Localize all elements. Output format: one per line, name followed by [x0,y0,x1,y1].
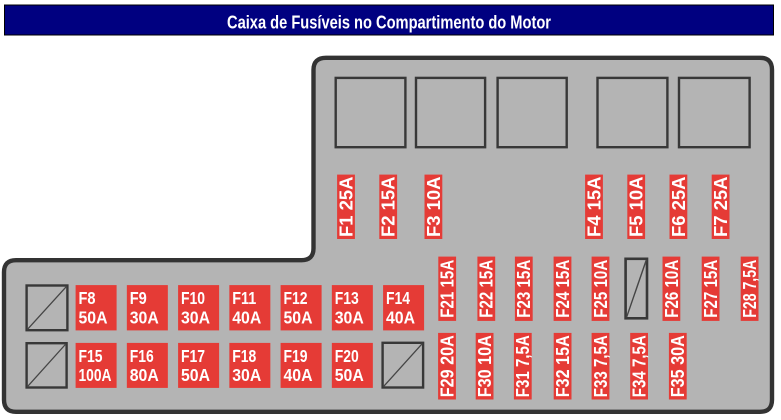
svg-text:F4 15A: F4 15A [583,177,604,238]
svg-text:50A: 50A [181,365,210,385]
svg-text:F11: F11 [232,288,256,308]
svg-text:F18: F18 [232,346,256,366]
svg-text:F30 10A: F30 10A [474,335,495,397]
svg-text:F22 15A: F22 15A [476,260,497,318]
svg-text:F14: F14 [386,288,410,308]
svg-text:50A: 50A [335,365,364,385]
svg-text:F17: F17 [181,346,205,366]
svg-text:F21 15A: F21 15A [437,260,458,318]
svg-text:80A: 80A [130,365,159,385]
svg-text:F6 25A: F6 25A [668,177,689,238]
svg-text:30A: 30A [335,307,364,327]
svg-text:Caixa de Fusíveis no Compartim: Caixa de Fusíveis no Compartimento do Mo… [227,11,551,32]
svg-text:F32 15A: F32 15A [552,335,573,397]
svg-text:F3 10A: F3 10A [423,177,444,238]
svg-text:F20: F20 [335,346,359,366]
svg-text:100A: 100A [79,365,112,385]
svg-text:F8: F8 [79,288,96,308]
svg-text:F24 15A: F24 15A [552,260,573,318]
svg-text:30A: 30A [130,307,159,327]
svg-text:F27 15A: F27 15A [700,260,721,318]
svg-text:F31 7,5A: F31 7,5A [512,335,533,397]
svg-text:F7 25A: F7 25A [710,177,731,238]
svg-text:F16: F16 [130,346,154,366]
svg-text:F15: F15 [79,346,103,366]
svg-text:F26 10A: F26 10A [661,260,682,318]
svg-text:F1 25A: F1 25A [335,177,356,238]
svg-text:50A: 50A [79,307,108,327]
svg-text:F28 7,5A: F28 7,5A [739,260,760,318]
svg-text:F34 7,5A: F34 7,5A [629,335,650,397]
svg-text:F29 20A: F29 20A [436,335,457,397]
svg-text:40A: 40A [232,307,261,327]
svg-text:F25 10A: F25 10A [590,260,611,318]
svg-text:30A: 30A [181,307,210,327]
svg-text:F13: F13 [335,288,359,308]
svg-text:F5 10A: F5 10A [626,177,647,238]
svg-text:F35 30A: F35 30A [667,335,688,397]
svg-text:F12: F12 [284,288,308,308]
svg-text:F23 15A: F23 15A [513,260,534,318]
svg-text:F33 7,5A: F33 7,5A [590,335,611,397]
svg-text:40A: 40A [386,307,415,327]
svg-text:F19: F19 [284,346,308,366]
svg-text:40A: 40A [284,365,313,385]
svg-text:F2 15A: F2 15A [378,177,399,238]
svg-text:50A: 50A [284,307,313,327]
svg-text:F9: F9 [130,288,147,308]
svg-text:30A: 30A [232,365,261,385]
svg-text:F10: F10 [181,288,205,308]
